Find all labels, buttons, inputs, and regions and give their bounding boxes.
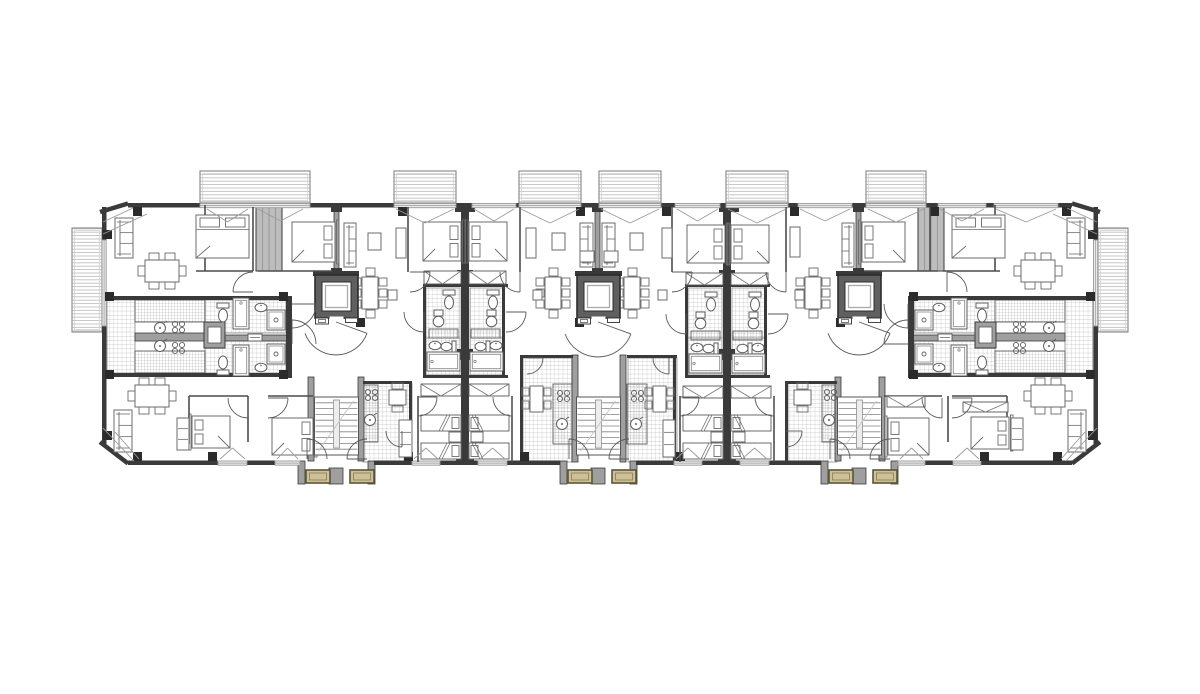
column (1086, 370, 1095, 379)
wall (286, 296, 292, 378)
column (398, 207, 407, 216)
toilet (217, 356, 229, 375)
wall (981, 461, 1072, 466)
window (478, 461, 507, 465)
kitchen-counter (429, 329, 458, 338)
furniture-item (449, 432, 461, 442)
window (1094, 240, 1098, 326)
side-balcony (1098, 228, 1128, 332)
bathtub (427, 352, 460, 371)
wall-gray (135, 333, 205, 341)
bathtub (470, 352, 503, 371)
sink (490, 341, 502, 349)
toilet (737, 343, 752, 354)
furniture-item (368, 233, 381, 250)
column (576, 207, 585, 216)
shower (915, 310, 933, 330)
sink (429, 341, 441, 349)
kitchen-counter (733, 331, 762, 340)
wall (105, 296, 286, 300)
furniture-item (711, 432, 723, 442)
floor-plan-drawing (0, 0, 1200, 694)
sofa (1068, 410, 1086, 452)
furniture-item (604, 251, 618, 262)
kitchen-counter (135, 351, 205, 373)
wall (374, 461, 412, 466)
bathtub (233, 345, 249, 376)
sofa (842, 223, 854, 267)
wall (685, 284, 688, 378)
furniture-item (733, 432, 745, 442)
closet (731, 386, 771, 398)
sink (933, 303, 945, 311)
wall (423, 375, 508, 378)
column (105, 292, 114, 301)
wall (128, 461, 218, 466)
wall (507, 461, 560, 466)
bed (728, 223, 770, 265)
balcony (726, 171, 788, 203)
toilet (703, 343, 718, 354)
bed (189, 414, 231, 450)
bed (423, 220, 465, 263)
window (412, 461, 440, 465)
wall (853, 203, 864, 212)
duct-shaft (975, 322, 996, 348)
bed (196, 215, 249, 258)
wall (908, 296, 914, 378)
toilet (475, 341, 490, 352)
window (102, 240, 106, 326)
sink (691, 343, 703, 351)
toilet (487, 290, 499, 309)
kitchen-counter (995, 351, 1065, 373)
furniture-item (533, 290, 542, 300)
furniture-item (662, 228, 672, 258)
column (520, 452, 529, 461)
wall (788, 203, 798, 208)
column (930, 207, 939, 216)
window (938, 204, 986, 208)
column (790, 207, 799, 216)
window (898, 461, 925, 465)
wardrobe (177, 418, 189, 450)
shower (267, 344, 285, 364)
wall (520, 355, 523, 462)
column (662, 207, 671, 216)
window (798, 204, 852, 208)
entry-mat (306, 470, 330, 483)
window (674, 461, 702, 465)
balcony (394, 171, 456, 203)
toilet (217, 303, 229, 322)
toilet (976, 356, 988, 375)
wall (914, 373, 1095, 377)
wardrobe (1011, 418, 1023, 450)
furniture-item (471, 432, 483, 442)
pedestal-sink (486, 310, 497, 327)
column (1088, 230, 1097, 239)
wall (440, 461, 478, 466)
furniture-item (630, 233, 643, 250)
closet (731, 273, 768, 285)
window (200, 204, 310, 208)
furniture-item (580, 251, 594, 262)
pedestal-sink (748, 312, 759, 329)
shower (915, 344, 933, 364)
wall-gray (595, 207, 600, 275)
bed (292, 220, 339, 264)
floor-plan-page (0, 0, 1200, 694)
entry-mat (568, 470, 592, 483)
elevator-core (838, 275, 881, 324)
furniture-item (396, 228, 406, 258)
wall (331, 203, 342, 212)
closet (683, 386, 723, 398)
balcony (519, 171, 581, 203)
toilet (441, 341, 456, 352)
tiled-floor (1065, 300, 1093, 373)
wall (1094, 326, 1099, 444)
kitchen-counter (691, 331, 720, 340)
bathtub (233, 298, 249, 329)
bathtub (951, 345, 967, 376)
toilet (749, 292, 761, 311)
entry-mat (829, 470, 853, 483)
wall (423, 284, 508, 287)
sofa (114, 410, 132, 452)
shower (267, 310, 285, 330)
bed (971, 415, 1013, 451)
wall (914, 296, 1095, 300)
column (909, 292, 918, 301)
bed (952, 215, 1005, 258)
wardrobe (663, 420, 675, 457)
window (994, 204, 1058, 208)
pocket-door (938, 334, 952, 341)
wall-gray (560, 461, 567, 484)
wall (702, 461, 740, 466)
sink (933, 363, 945, 371)
kitchen-counter (995, 300, 1065, 322)
window (866, 204, 926, 208)
column (103, 230, 112, 239)
sink (752, 343, 764, 351)
column (1086, 292, 1095, 301)
entry-mat (350, 470, 374, 483)
wall (1058, 203, 1072, 208)
wall (128, 203, 200, 208)
toilet (443, 290, 455, 309)
wall (627, 355, 677, 358)
window (726, 204, 788, 208)
column (105, 370, 114, 379)
wall-gray (591, 468, 605, 484)
column (909, 370, 918, 379)
column (279, 370, 288, 379)
column (279, 292, 288, 301)
wall (788, 381, 837, 384)
wall (102, 326, 107, 444)
wall (925, 461, 953, 466)
entry-mat (612, 470, 636, 483)
wall-gray (821, 461, 828, 484)
furniture-item (795, 290, 804, 300)
window (675, 204, 720, 208)
column (133, 207, 142, 216)
closet (421, 384, 461, 396)
window (740, 461, 769, 465)
closet (887, 396, 925, 407)
balcony (599, 171, 661, 203)
wall-gray (852, 468, 866, 484)
duct-shaft (204, 322, 225, 348)
bathtub (689, 354, 722, 373)
closet (469, 384, 509, 396)
column (980, 452, 989, 461)
window (953, 461, 981, 465)
entry-mat (873, 470, 897, 483)
wall (247, 461, 275, 466)
furniture-item (552, 233, 565, 250)
pedestal-sink (695, 312, 706, 329)
column (1053, 452, 1062, 461)
balcony (866, 171, 926, 203)
wall (685, 375, 770, 378)
toilet (976, 303, 988, 322)
furniture-item (658, 290, 667, 300)
wall (310, 203, 394, 208)
column (1062, 207, 1071, 216)
bed (687, 223, 729, 265)
wall (986, 203, 994, 208)
wall (105, 373, 286, 377)
window (472, 204, 516, 208)
wall (661, 203, 675, 208)
wardrobe (399, 420, 412, 457)
pocket-door (248, 334, 262, 341)
kitchen-counter (471, 329, 500, 338)
furniture-item (388, 290, 397, 300)
sink (255, 363, 267, 371)
elevator-core (577, 275, 620, 324)
bed (885, 416, 930, 457)
bed (466, 220, 508, 263)
furniture-item (526, 228, 536, 258)
bathtub (732, 354, 765, 373)
wall (423, 284, 426, 378)
wall-gray (329, 468, 343, 484)
furniture-item (790, 227, 800, 257)
wall (926, 203, 938, 208)
balcony (200, 171, 310, 203)
tiled-floor (107, 300, 135, 373)
wall (636, 461, 674, 466)
window (599, 204, 661, 208)
column (208, 452, 217, 461)
window (218, 461, 247, 465)
window (519, 204, 581, 208)
window (275, 461, 300, 465)
bed (272, 416, 317, 457)
bathtub (951, 298, 967, 329)
kitchen-counter (135, 300, 205, 322)
pedestal-sink (433, 310, 444, 327)
sink (255, 303, 267, 311)
side-balcony (72, 228, 102, 332)
wall (769, 461, 821, 466)
sofa (344, 223, 356, 267)
wall (363, 381, 412, 384)
elevator-core (315, 275, 358, 324)
toilet (705, 292, 717, 311)
wall (785, 381, 788, 462)
bed (859, 220, 906, 264)
